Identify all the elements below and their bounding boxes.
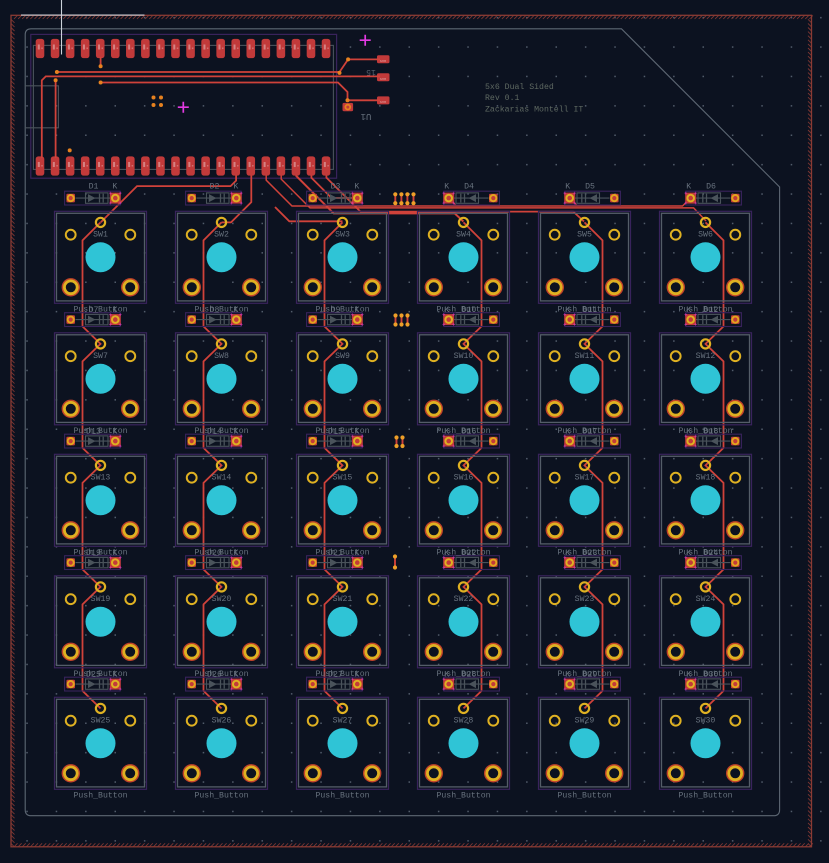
svg-text:SW24: SW24 (696, 595, 716, 604)
svg-text:Push_Button: Push_Button (678, 305, 732, 315)
svg-text:SW19: SW19 (91, 595, 111, 604)
svg-text:D3: D3 (331, 182, 341, 191)
svg-text:Push_Button: Push_Button (436, 791, 490, 801)
svg-text:U1: U1 (361, 111, 372, 121)
svg-text:Push_Button: Push_Button (194, 791, 248, 801)
svg-text:15: 15 (366, 67, 376, 76)
svg-text:Push_Button: Push_Button (315, 669, 369, 679)
svg-text:Push_Button: Push_Button (73, 548, 127, 558)
svg-text:SW4: SW4 (456, 230, 471, 239)
svg-text:5v0: 5v0 (380, 101, 386, 105)
svg-text:SW16: SW16 (454, 473, 474, 482)
svg-text:SW26: SW26 (212, 716, 232, 725)
svg-text:D2: D2 (210, 182, 220, 191)
svg-text:Push_Button: Push_Button (436, 305, 490, 315)
svg-text:Push_Button: Push_Button (315, 791, 369, 801)
svg-text:Push_Button: Push_Button (73, 791, 127, 801)
svg-text:Push_Button: Push_Button (73, 305, 127, 315)
svg-text:D5: D5 (585, 182, 595, 191)
svg-text:Push_Button: Push_Button (557, 305, 611, 315)
svg-text:SW15: SW15 (333, 473, 353, 482)
svg-text:Push_Button: Push_Button (557, 426, 611, 436)
svg-text:Push_Button: Push_Button (194, 305, 248, 315)
svg-text:K: K (354, 182, 359, 191)
svg-text:SW27: SW27 (333, 716, 353, 725)
svg-text:SW12: SW12 (696, 352, 716, 361)
svg-text:Rev 0.1: Rev 0.1 (485, 94, 519, 103)
svg-text:Push_Button: Push_Button (315, 548, 369, 558)
svg-text:SW6: SW6 (698, 230, 713, 239)
svg-text:K: K (112, 182, 117, 191)
svg-text:Push_Button: Push_Button (315, 426, 369, 436)
svg-text:Push_Button: Push_Button (73, 426, 127, 436)
svg-text:Push_Button: Push_Button (557, 669, 611, 679)
svg-text:Push_Button: Push_Button (194, 426, 248, 436)
svg-text:Push_Button: Push_Button (436, 669, 490, 679)
svg-text:SW8: SW8 (214, 352, 229, 361)
svg-text:SW23: SW23 (575, 595, 595, 604)
svg-text:SW1: SW1 (93, 230, 108, 239)
svg-text:SW5: SW5 (577, 230, 592, 239)
svg-text:SW13: SW13 (91, 473, 111, 482)
svg-text:SW30: SW30 (696, 716, 716, 725)
svg-text:SW22: SW22 (454, 595, 474, 604)
svg-text:SW7: SW7 (93, 352, 108, 361)
svg-text:Push_Button: Push_Button (557, 548, 611, 558)
svg-text:Push_Button: Push_Button (73, 669, 127, 679)
svg-text:D6: D6 (706, 182, 716, 191)
svg-text:SW14: SW14 (212, 473, 232, 482)
svg-text:K: K (565, 182, 570, 191)
svg-text:SW25: SW25 (91, 716, 111, 725)
svg-text:SW28: SW28 (454, 716, 474, 725)
svg-text:Push_Button: Push_Button (678, 791, 732, 801)
svg-text:SW20: SW20 (212, 595, 232, 604)
svg-text:Push_Button: Push_Button (678, 669, 732, 679)
svg-text:5v0: 5v0 (380, 78, 386, 82)
svg-text:Push_Button: Push_Button (678, 548, 732, 558)
svg-text:5x6 Dual Sided: 5x6 Dual Sided (485, 82, 554, 92)
svg-text:Push_Button: Push_Button (194, 548, 248, 558)
svg-text:SW18: SW18 (696, 473, 716, 482)
svg-text:SW11: SW11 (575, 352, 595, 361)
svg-text:SW10: SW10 (454, 352, 474, 361)
svg-text:SW21: SW21 (333, 595, 353, 604)
svg-text:SW2: SW2 (214, 230, 229, 239)
svg-text:K: K (686, 182, 691, 191)
svg-text:D1: D1 (89, 182, 99, 191)
svg-text:SW29: SW29 (575, 716, 595, 725)
svg-text:Push_Button: Push_Button (194, 669, 248, 679)
svg-text:Push_Button: Push_Button (436, 548, 490, 558)
svg-text:Push_Button: Push_Button (315, 305, 369, 315)
svg-text:SW3: SW3 (335, 230, 350, 239)
svg-text:D4: D4 (464, 182, 474, 191)
svg-text:Zackarias Montell IT: Zackarias Montell IT (485, 104, 583, 114)
svg-text:K: K (444, 182, 449, 191)
svg-text:Push_Button: Push_Button (557, 791, 611, 801)
svg-text:5v0: 5v0 (380, 60, 386, 64)
svg-text:Push_Button: Push_Button (678, 426, 732, 436)
svg-text:K: K (233, 182, 238, 191)
svg-text:SW17: SW17 (575, 473, 595, 482)
svg-text:SW9: SW9 (335, 352, 350, 361)
svg-text:Push_Button: Push_Button (436, 426, 490, 436)
